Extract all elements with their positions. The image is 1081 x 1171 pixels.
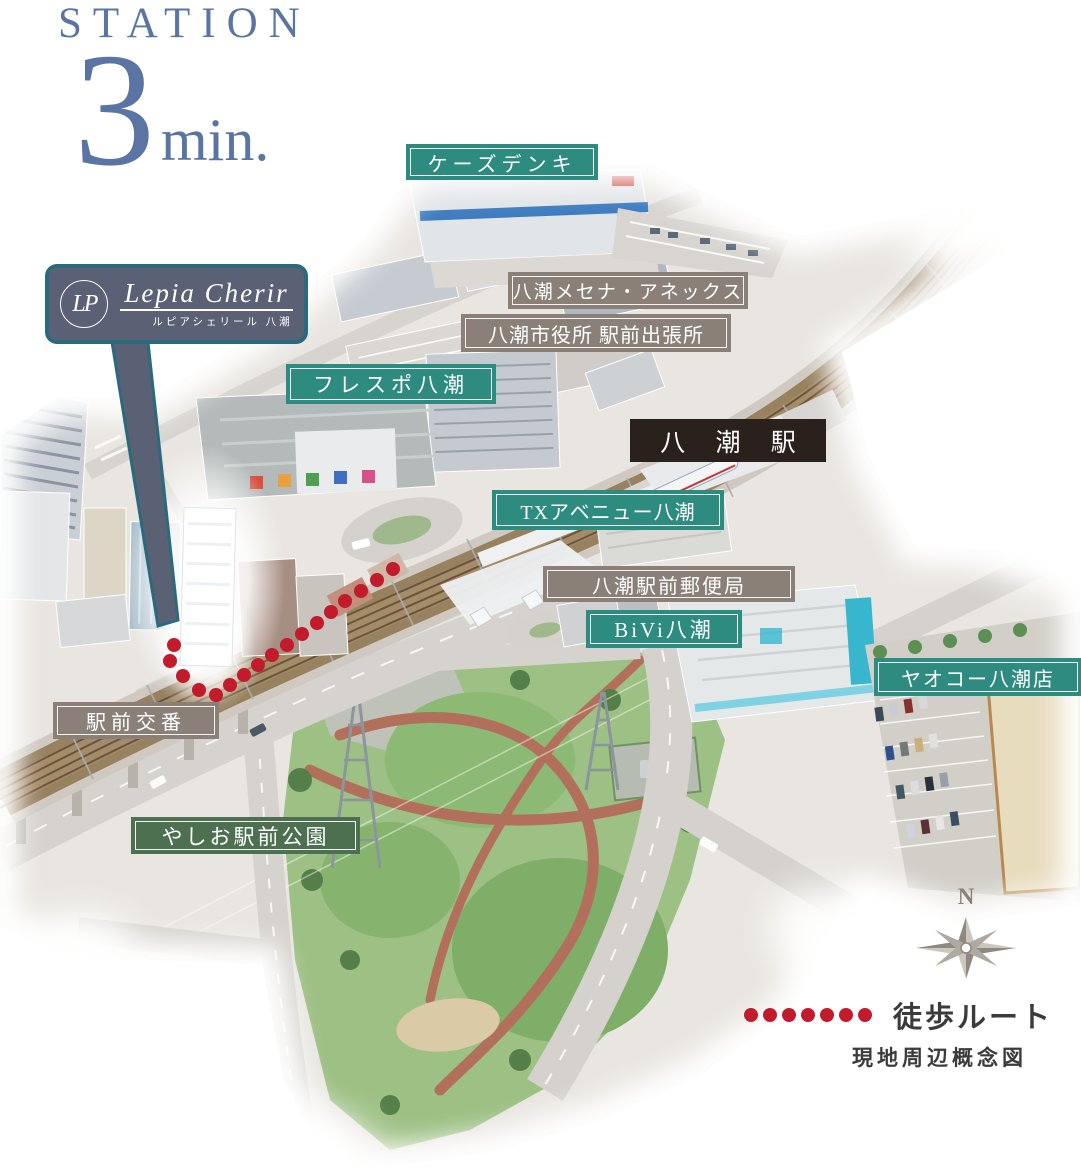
map-label-frespo: フレスポ八潮	[286, 364, 496, 404]
station-minutes-title: STATION 3 min.	[58, 2, 311, 178]
route-legend: 徒歩ルート	[744, 994, 1053, 1036]
map-label-park: やしお駅前公園	[131, 817, 360, 854]
map-caption: 現地周辺概念図	[852, 1042, 1027, 1072]
route-dot	[839, 1008, 853, 1022]
route-dot	[858, 1008, 872, 1022]
map-label-tx-avenue: TXアベニュー八潮	[492, 490, 724, 530]
route-dot	[801, 1008, 815, 1022]
bivi-building	[668, 585, 882, 722]
map-label-bivi: BiVi八潮	[586, 610, 742, 648]
map-label-ksdenki: ケーズデンキ	[406, 144, 598, 180]
route-dot	[744, 1008, 758, 1022]
map-label-yashio-station: 八 潮 駅	[630, 419, 826, 462]
brand-monogram-icon: LP	[60, 280, 108, 328]
route-dot	[763, 1008, 777, 1022]
title-minutes-unit: min.	[161, 110, 269, 178]
route-dots-sample	[744, 1008, 877, 1022]
lepia-cherir-callout: LP Lepia Cherir ルピアシェリール 八潮	[45, 264, 308, 344]
compass-north-letter: N	[958, 884, 975, 909]
map-label-police-box: 駅前交番	[53, 702, 219, 739]
compass-icon: N	[900, 880, 1032, 998]
brand-name-japanese: ルピアシェリール 八潮	[152, 314, 292, 329]
map-label-mecenat: 八潮メセナ・アネックス	[508, 272, 748, 309]
route-dot	[782, 1008, 796, 1022]
title-minutes-number: 3	[74, 45, 155, 178]
brand-name: Lepia Cherir	[120, 280, 292, 311]
route-dot	[820, 1008, 834, 1022]
compass-rose: N	[900, 880, 1032, 1003]
route-legend-label: 徒歩ルート	[893, 994, 1053, 1036]
map-label-post-office: 八潮駅前郵便局	[543, 566, 795, 602]
map-label-yaoko: ヤオコー八潮店	[874, 658, 1081, 696]
station-area-map: STATION 3 min. LP Lepia Cherir ルピアシェリール …	[0, 0, 1081, 1171]
map-label-city-office: 八潮市役所 駅前出張所	[461, 314, 731, 352]
